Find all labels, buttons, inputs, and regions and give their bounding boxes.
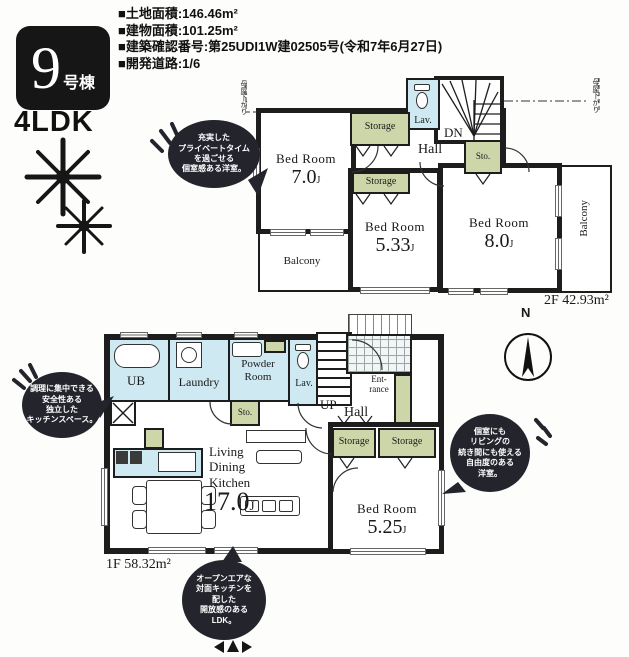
floor1-entrance-label: Ent- rance [369, 374, 388, 395]
floor2-storage-top-label: Storage [365, 121, 396, 133]
kitchen-sink-icon [158, 452, 196, 472]
spec-list: ■土地面積:146.46m² ■建物面積:101.25m² ■建築確認番号:第2… [118, 6, 442, 72]
window [214, 547, 258, 554]
vanity-sink-icon [232, 342, 262, 357]
floor1-ldk-size: 17.0J [204, 487, 255, 517]
bubble-private-room: 充実した プライベートタイム を過ごせる 個室感ある洋室。 [168, 120, 260, 188]
bubble-ldk: オープンエアな 対面キッチンを 配した 開放感のある LDK。 [182, 560, 266, 640]
spec-confirmation-number: ■建築確認番号:第25UDI1W建02505号(令和7年6月27日) [118, 39, 442, 56]
compass-icon [505, 334, 551, 380]
floor2-balcony-right-label: Balcony [578, 200, 591, 237]
toilet-icon [297, 352, 309, 369]
bathtub-icon [114, 344, 160, 368]
chair-icon [132, 510, 147, 529]
stove-icon [116, 451, 128, 464]
window [120, 332, 148, 338]
floor1-powder-label: Powder Room [241, 358, 275, 383]
floor2-bedroom3-name: Bed Room [469, 216, 529, 231]
floor2-bedroom1-size: 7.0J [292, 166, 321, 189]
floor2-balcony-left-label: Balcony [284, 255, 321, 268]
window [555, 238, 562, 270]
window [270, 229, 306, 236]
toilet-icon [295, 344, 311, 351]
tv-board-icon [246, 430, 306, 443]
window [101, 468, 108, 526]
floor1-bedroom-name: Bed Room [357, 502, 417, 517]
sparkle-star-large [27, 140, 99, 214]
floor2-lav-label: Lav. [414, 115, 431, 127]
floor1-lav-label: Lav. [295, 378, 312, 390]
floor2-moya-right-label: 母屋下がり [592, 78, 599, 113]
floor1-storage-b-label: Storage [392, 436, 423, 448]
floor1-ldk-name: Living Dining Kitchen [209, 444, 250, 490]
refrigerator-icon [144, 428, 164, 449]
window [148, 547, 206, 554]
floor2-bedroom2-size: 5.33J [376, 234, 415, 257]
building-number-suffix: 号棟 [63, 69, 95, 93]
powder-mat [264, 340, 286, 353]
plan-type-label: 4LDK [14, 106, 94, 139]
sparkle-star-small [58, 201, 110, 252]
dining-table-icon [146, 480, 202, 534]
floor1-hall-label: Hall [344, 405, 368, 421]
floor2-moya-left-label: 母屋下がり [240, 80, 247, 115]
toilet-icon [416, 92, 428, 109]
floor1-storage-a-label: Storage [339, 436, 370, 448]
spec-building-area: ■建物面積:101.25m² [118, 23, 442, 40]
bubble-bedroom: 個室にも リビングの 続き間にも使える 自由度のある 洋室。 [450, 414, 530, 492]
floor2-bedroom1-name: Bed Room [276, 152, 336, 167]
window [234, 332, 258, 338]
bubble-ldk-arrows [214, 640, 252, 653]
stove-icon [130, 451, 142, 464]
floorplan-flyer: 9 号棟 4LDK ■土地面積:146.46m² ■建物面積:101.25m² … [0, 0, 629, 657]
floor2-bedroom3-size: 8.0J [485, 230, 514, 253]
building-number: 9 [31, 38, 61, 98]
spec-land-area: ■土地面積:146.46m² [118, 6, 442, 23]
window [176, 332, 202, 338]
window [438, 470, 445, 526]
floor2-bedroom2-name: Bed Room [365, 220, 425, 235]
floor1-ub-label: UB [127, 374, 145, 389]
floor1-sto-label: Sto. [238, 407, 252, 417]
window [480, 288, 508, 295]
floor1-laundry-label: Laundry [179, 376, 220, 390]
spec-development-road: ■開発道路:1/6 [118, 56, 442, 73]
floor1-bedroom-size: 5.25J [368, 516, 407, 539]
window [350, 548, 426, 555]
washer-drum-icon [181, 347, 197, 363]
low-table-icon [256, 450, 302, 464]
bubble-kitchen: 調理に集中できる 安全性ある 独立した キッチンスペース。 [22, 372, 102, 438]
floor1-cross-closet [110, 400, 136, 426]
floor1-area-label: 1F 58.32m² [106, 557, 171, 573]
window [310, 229, 344, 236]
sofa-cushion [279, 500, 293, 512]
floor1-up-label: UP [320, 398, 337, 413]
floor2-hall-label: Hall [418, 142, 442, 158]
compass-north-label: N [521, 306, 530, 321]
floor1-entrance-tile [346, 334, 412, 374]
floor2-storage-mid-label: Storage [366, 176, 397, 188]
floor2-dn-label: DN [444, 126, 463, 141]
floor2-area-label: 2F 42.93m² [544, 293, 609, 309]
floor2-sto-label: Sto. [476, 151, 490, 161]
sofa-cushion [262, 500, 276, 512]
toilet-icon [414, 84, 430, 91]
window [555, 185, 562, 217]
window [448, 288, 474, 295]
building-number-badge: 9 号棟 [16, 26, 110, 110]
window [360, 287, 430, 294]
chair-icon [132, 486, 147, 505]
